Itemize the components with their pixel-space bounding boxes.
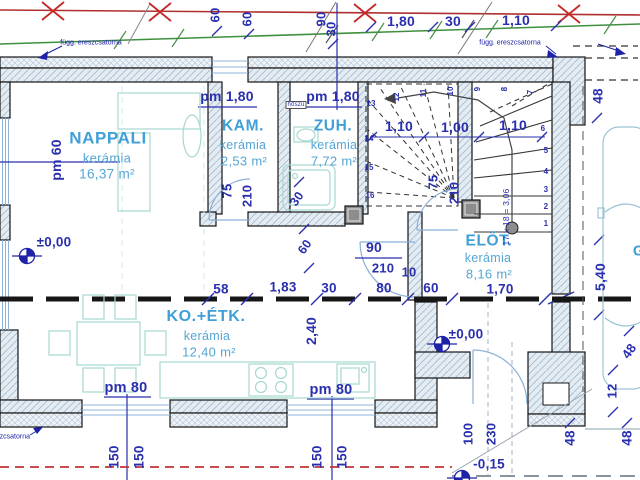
north-window-glazing bbox=[212, 61, 248, 73]
room-zuh-material: kerámia bbox=[311, 139, 358, 152]
tread-4: 4 bbox=[544, 168, 549, 176]
gutter-label-left: függ. ereszcsatorna bbox=[60, 40, 121, 47]
dim-south-150-d: 150 bbox=[335, 445, 349, 468]
chain-60: 60 bbox=[423, 281, 438, 295]
dim-top-60-b: 60 bbox=[241, 12, 254, 27]
gutter-label-right: függ. ereszcsatorna bbox=[479, 40, 540, 47]
chain-183: 1,83 bbox=[269, 280, 296, 294]
parapet-south-mid: pm 80 bbox=[310, 383, 353, 398]
stair-dim-c: 1,10 bbox=[499, 118, 527, 132]
room-kam-name: KAM. bbox=[222, 118, 264, 134]
level-marker-nappali bbox=[12, 249, 42, 264]
room-zuh-area: 7,72 m² bbox=[311, 155, 357, 168]
parapet-kam: pm 1,80 bbox=[200, 89, 254, 103]
tread-10: 10 bbox=[447, 86, 455, 95]
room-kam-area: 2,53 m² bbox=[221, 155, 267, 168]
tread-2: 2 bbox=[544, 203, 549, 211]
door-main-width: 90 bbox=[366, 240, 382, 254]
dim-240: 2,40 bbox=[304, 317, 318, 345]
tread-12: 12 bbox=[393, 92, 401, 101]
dim-south-150-c: 150 bbox=[310, 445, 324, 468]
walking-line bbox=[398, 92, 512, 228]
tread-13: 13 bbox=[366, 100, 375, 108]
room-kam-material: kerámia bbox=[220, 139, 267, 152]
level-nappali: ±0,00 bbox=[37, 235, 72, 249]
west-wall bbox=[0, 82, 18, 400]
stove bbox=[249, 364, 293, 396]
dim-right-48-top: 48 bbox=[591, 88, 605, 103]
tread-15: 15 bbox=[364, 164, 373, 172]
dining-table bbox=[77, 322, 140, 365]
level-elot: ±0,00 bbox=[449, 327, 484, 341]
dim-top-30-small: 30 bbox=[325, 22, 338, 37]
room-elot-area: 8,16 m² bbox=[466, 268, 512, 281]
room-garage-name: G bbox=[633, 244, 640, 259]
tread-1: 1 bbox=[544, 220, 549, 228]
plan-linework bbox=[0, 0, 640, 480]
tread-14: 14 bbox=[364, 135, 373, 143]
parapet-south-left: pm 80 bbox=[105, 381, 148, 396]
door-kam-width: 75 bbox=[221, 184, 234, 199]
dim-south-150-a: 150 bbox=[107, 445, 121, 468]
winder-treads-dashed bbox=[368, 84, 454, 198]
room-koetk-material: kerámia bbox=[184, 330, 231, 343]
floor-plan: 60 60 90 30 1,80 30 1,10 függ. ereszcsat… bbox=[0, 0, 640, 480]
chairs bbox=[49, 295, 166, 392]
sofa bbox=[118, 93, 200, 129]
room-zuh-name: ZUH. bbox=[314, 118, 353, 134]
parapet-zuh: pm 1,80 bbox=[306, 89, 360, 103]
door-main-height: 210 bbox=[372, 262, 394, 275]
east-wall bbox=[548, 82, 574, 354]
level-marker-entry bbox=[447, 471, 477, 480]
tread-16: 16 bbox=[365, 192, 374, 200]
dim-right-540: 5,40 bbox=[593, 263, 607, 291]
room-nappali-name: NAPPALI bbox=[69, 130, 147, 147]
door-elot-width: 75 bbox=[427, 175, 440, 190]
tread-9: 9 bbox=[474, 87, 482, 92]
plant bbox=[183, 115, 201, 157]
dim-top-110: 1,10 bbox=[502, 13, 530, 27]
dim-right-12: 12 bbox=[606, 384, 619, 399]
chain-58: 58 bbox=[213, 282, 228, 296]
tread-8: 8 bbox=[501, 87, 509, 92]
room-koetk-name: KO.+ÉTK. bbox=[166, 309, 245, 325]
door-kam-height: 210 bbox=[241, 185, 254, 207]
stair-dim-a: 1,10 bbox=[385, 119, 413, 133]
insulation-note: hőszü bbox=[285, 101, 306, 109]
room-nappali-material: kerámia bbox=[83, 152, 131, 165]
dim-right-48-se: 48 bbox=[620, 430, 634, 445]
north-wall bbox=[0, 46, 638, 125]
level-entry: -0,15 bbox=[473, 457, 505, 471]
tread-3: 3 bbox=[544, 186, 549, 194]
tread-7: 7 bbox=[527, 90, 535, 95]
door-entry-width: 100 bbox=[462, 423, 475, 445]
flight-treads bbox=[474, 84, 552, 232]
room-nappali-area: 16,37 m² bbox=[79, 167, 135, 181]
stair-dim-b: 1,00 bbox=[441, 120, 469, 134]
parapet-west: pm 60 bbox=[49, 139, 63, 180]
door-elot-height: 210 bbox=[448, 182, 461, 204]
tread-11: 11 bbox=[420, 89, 428, 98]
dim-top-30: 30 bbox=[445, 14, 461, 28]
dim-right-48-sw: 48 bbox=[563, 430, 577, 445]
chain-30: 30 bbox=[321, 281, 336, 295]
door-main-offset: 10 bbox=[402, 266, 417, 279]
stair-formula: 17 x 18 = 3,06 bbox=[502, 189, 511, 246]
room-koetk-area: 12,40 m² bbox=[182, 346, 236, 359]
dim-top-180: 1,80 bbox=[387, 14, 415, 28]
south-wall bbox=[0, 400, 437, 427]
dim-south-150-b: 150 bbox=[132, 445, 146, 468]
door-entry-height: 230 bbox=[485, 423, 498, 445]
dim-top-60-a: 60 bbox=[209, 8, 222, 23]
tread-6: 6 bbox=[541, 125, 546, 133]
chain-80: 80 bbox=[376, 281, 391, 295]
chain-170: 1,70 bbox=[486, 282, 513, 296]
gutter-label-bottom: ereszcsatorna bbox=[0, 434, 30, 441]
level-markers bbox=[12, 249, 477, 480]
entry-door-arc bbox=[473, 350, 527, 404]
room-elot-material: kerámia bbox=[465, 252, 512, 265]
tread-5: 5 bbox=[544, 147, 549, 155]
